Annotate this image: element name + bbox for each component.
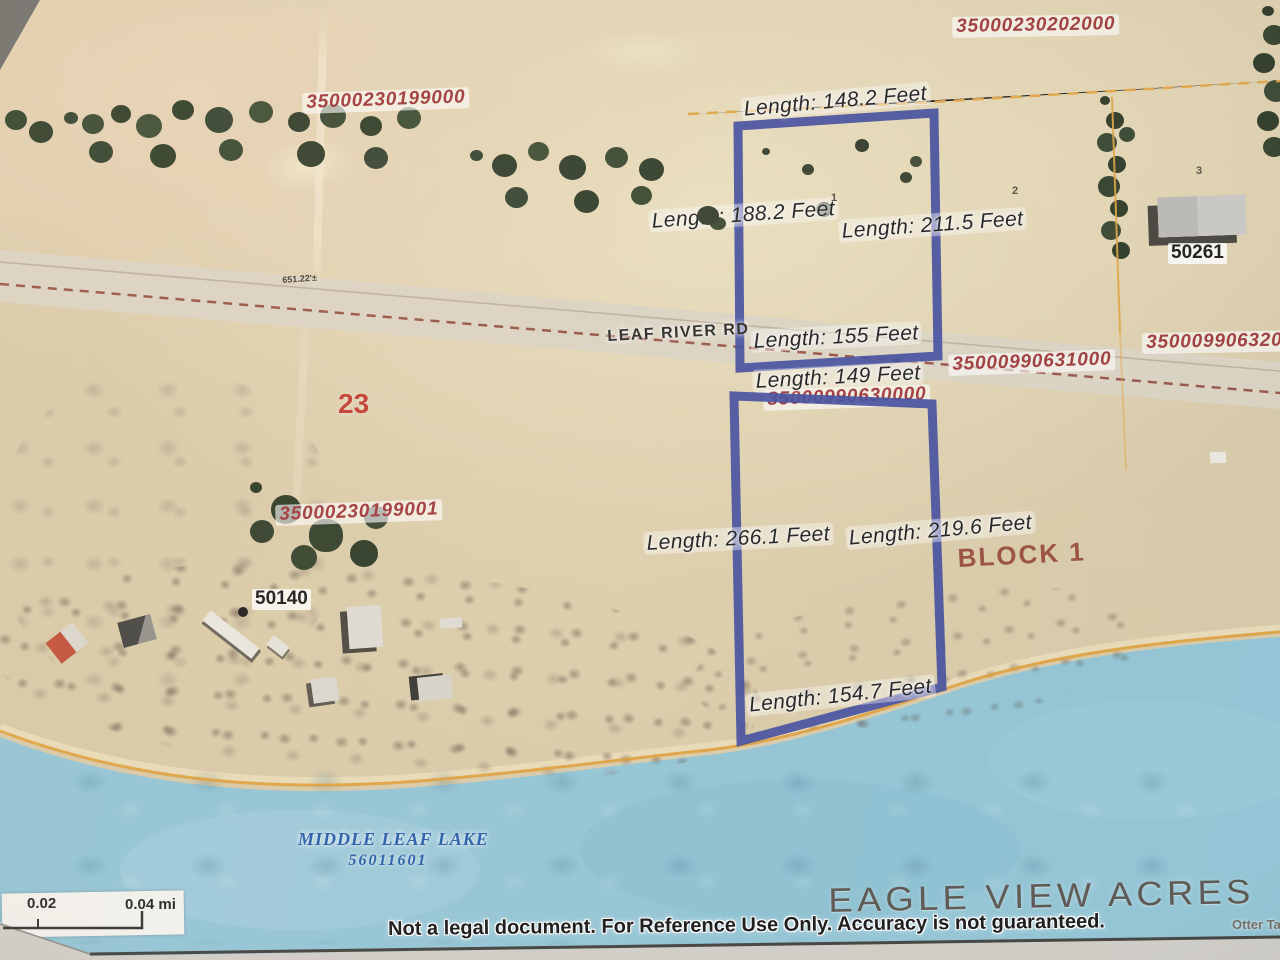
evergreen-row <box>1262 6 1274 16</box>
length-label-south-bottom: Length: 154.7 Feet <box>745 674 936 717</box>
lake-light-patch <box>990 700 1280 820</box>
bare-tree-field <box>0 372 335 697</box>
lake-id: 56011601 <box>298 851 478 870</box>
small-white-marker <box>1210 452 1227 464</box>
table-corner <box>0 0 40 70</box>
terrain-layer <box>0 0 1280 960</box>
building <box>117 614 157 648</box>
survey-distance-label: 651.22'± <box>282 274 317 285</box>
building <box>310 676 339 703</box>
lot-number-2: 2 <box>1012 186 1018 197</box>
parcel-id-road-east: 35000990631000 <box>948 349 1116 376</box>
tree-cluster <box>470 150 483 161</box>
map-border-line <box>90 937 1280 954</box>
parcel-map-photo: 35000990630000 35000230199000 3500023020… <box>0 0 1280 960</box>
building <box>440 617 463 629</box>
section-number-label: 23 <box>338 390 369 418</box>
building <box>46 622 89 663</box>
scale-mid-label: 0.02 <box>27 896 56 911</box>
address-point <box>238 607 248 617</box>
lot-boundary-orange <box>1112 97 1120 332</box>
sand-patch <box>258 130 358 199</box>
disclaimer-text: Not a legal document. For Reference Use … <box>388 911 1105 939</box>
length-label-north-left: Length: 188.2 Feet <box>648 197 839 233</box>
length-label-north-bottom: Length: 155 Feet <box>750 321 922 353</box>
sand-patch <box>580 30 710 74</box>
address-label-east: 50261 <box>1168 243 1227 264</box>
shoreline-boundary-orange <box>0 632 1280 785</box>
lot-boundary-orange <box>1120 332 1126 470</box>
scale-end-label: 0.04 mi <box>125 897 176 912</box>
parcel-id-far-east: 35000990632000 <box>1142 330 1280 354</box>
address-label-west: 50140 <box>252 589 311 610</box>
length-label-north-top: Length: 148.2 Feet <box>740 81 931 121</box>
field-track <box>312 6 328 298</box>
length-label-south-left: Length: 266.1 Feet <box>643 522 833 555</box>
building <box>266 635 289 657</box>
length-label-north-right: Length: 211.5 Feet <box>838 207 1027 243</box>
shoreline-tree-band <box>682 564 1170 753</box>
lot-number-1: 1 <box>831 193 837 204</box>
tree-cluster <box>64 112 78 124</box>
lake-label: MIDDLE LEAF LAKE 56011601 <box>298 829 478 870</box>
tree-cluster <box>762 148 770 155</box>
parcel-id-sw: 35000230199001 <box>275 499 443 526</box>
road-name-label: LEAF RIVER RD <box>607 321 750 346</box>
building <box>203 610 260 658</box>
block-label: BLOCK 1 <box>957 538 1086 571</box>
attribution-text: Otter Ta <box>1232 918 1280 931</box>
boundary-layer <box>0 0 1280 960</box>
parcel-id-ne: 35000230202000 <box>952 14 1119 38</box>
shoreline-tree-band <box>0 545 766 797</box>
tree-cluster <box>250 482 262 493</box>
photo-tint-overlay <box>0 0 1280 960</box>
evergreen-row <box>1100 96 1110 105</box>
building <box>1157 194 1246 237</box>
lake-name: MIDDLE LEAF LAKE <box>298 829 478 851</box>
shore-sand <box>0 629 1280 782</box>
building <box>347 605 384 649</box>
lot-number-3: 3 <box>1196 166 1202 177</box>
parcel-id-nw: 35000230199000 <box>302 87 470 114</box>
building <box>417 674 453 701</box>
